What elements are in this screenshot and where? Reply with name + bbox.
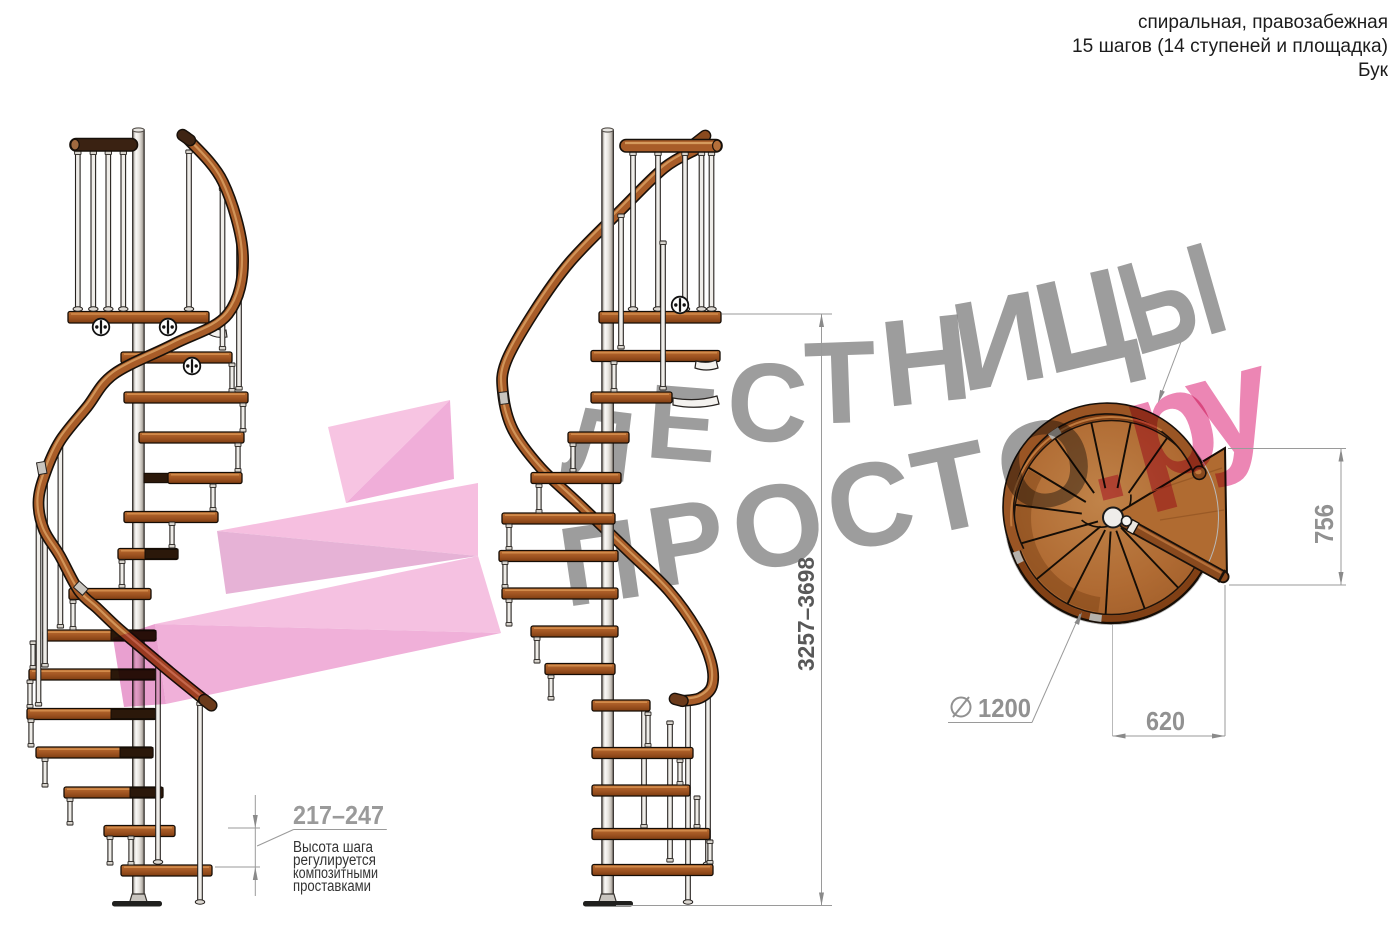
svg-text:3257–3698: 3257–3698	[793, 557, 819, 671]
svg-text:проставками: проставками	[293, 878, 371, 895]
svg-text:Бук: Бук	[1358, 59, 1388, 81]
svg-text:620: 620	[1146, 706, 1185, 736]
svg-text:15 шагов (14 ступеней и площад: 15 шагов (14 ступеней и площадка)	[1072, 35, 1388, 57]
svg-text:1200: 1200	[978, 693, 1031, 723]
svg-text:спиральная, правозабежная: спиральная, правозабежная	[1138, 11, 1388, 33]
svg-text:756: 756	[1309, 504, 1339, 544]
svg-text:217–247: 217–247	[293, 800, 384, 830]
